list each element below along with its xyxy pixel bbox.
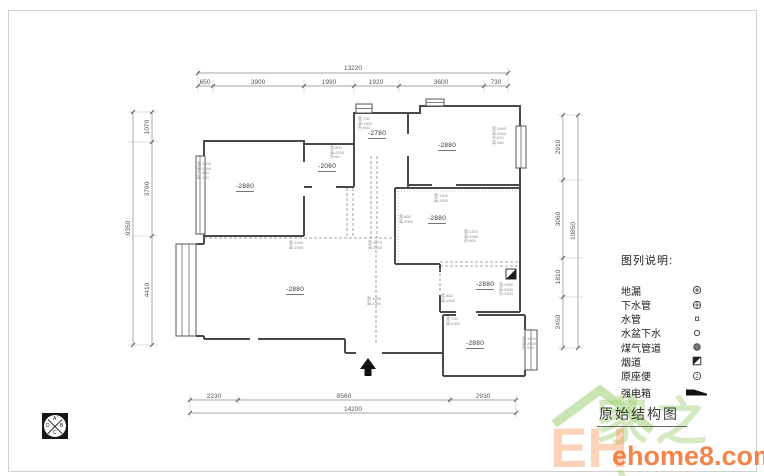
entry-arrow-icon <box>360 358 376 376</box>
room-label-bedroom-1: -2880 <box>236 183 254 192</box>
window-spec-note: 宽:800 高:2030 台:60 <box>330 146 344 160</box>
legend-item-drain-pipe: 下水管 <box>621 299 709 310</box>
svg-text:2450: 2450 <box>555 314 562 329</box>
dimension-text: 13220 650 3900 1990 1920 3600 730 2230 8… <box>125 65 577 413</box>
svg-text:2: 2 <box>695 374 698 380</box>
toilet-icon: 2 <box>685 371 709 381</box>
window-spec-note: 宽:850 高:2000 <box>399 215 413 224</box>
compass-letter-s: C <box>53 430 57 436</box>
basin-drain-icon <box>685 328 709 338</box>
legend-item-power-box: 强电箱 <box>621 387 709 398</box>
room-label-bathroom: -2880 <box>428 215 446 224</box>
power-box-icon <box>685 388 709 397</box>
floor-drain-icon <box>685 285 709 295</box>
compass-letter-e: B <box>60 423 63 429</box>
compass-letter-w: D <box>46 423 50 429</box>
dim-bottom-total: 14200 <box>344 406 362 413</box>
window-spec-note: 宽:1500 高:2000 台:440 离:100 <box>197 162 211 180</box>
svg-text:650: 650 <box>200 79 211 86</box>
svg-text:8560: 8560 <box>337 393 352 400</box>
window-spec-note: 宽:1400 高:2200 台:1100 <box>499 283 513 297</box>
room-label-bedroom-2: -2880 <box>438 142 456 151</box>
legend-item-basin-drain: 水盆下水 <box>621 328 709 339</box>
room-label-kitchen: -2880 <box>476 281 494 290</box>
legend-item-floor-drain: 地漏 <box>621 285 709 296</box>
legend-item-toilet: 原座便 2 <box>621 370 709 381</box>
window-spec-note: 宽:720 高:2000 <box>446 317 460 326</box>
room-label-living-room: -2880 <box>286 286 304 295</box>
window-spec-note: 宽:1800 高:2040 台:510 离:450 <box>492 127 506 145</box>
flue-symbol <box>506 269 516 279</box>
legend-item-water-pipe: 水管 <box>621 313 709 324</box>
room-label-hallway: -2780 <box>368 130 386 139</box>
svg-text:3060: 3060 <box>555 211 562 226</box>
svg-text:3600: 3600 <box>434 79 449 86</box>
window-symbols <box>176 99 537 370</box>
svg-text:3790: 3790 <box>144 181 151 196</box>
dim-left-total: 9350 <box>125 220 132 235</box>
window-spec-note: 宽:850 高:2000 <box>441 294 455 303</box>
legend-item-gas-pipe: 煤气管道 <box>621 342 709 353</box>
drain-pipe-icon <box>685 300 709 310</box>
svg-text:2230: 2230 <box>207 393 222 400</box>
dim-top-total: 13220 <box>344 65 362 72</box>
drawing-sheet: 13220 650 3900 1990 1920 3600 730 2230 8… <box>0 0 764 476</box>
dotted-lines <box>398 191 517 261</box>
window-spec-note: 宽:1250 高:2000 <box>367 297 381 306</box>
legend: 图列说明: 地漏 下水管 水管 水盆下水 煤气管道 <box>621 252 751 401</box>
window-spec-note: 宽:1270 高:2000 <box>368 241 382 250</box>
window-spec-note: 宽:1370 高:1980 台:900 <box>464 230 478 244</box>
sheet-title: 原始结构图 <box>597 404 687 427</box>
window-spec-note: 宽:1800 高:2040 台:510 <box>522 337 536 351</box>
water-pipe-icon <box>685 314 709 324</box>
gas-pipe-icon <box>685 342 709 352</box>
svg-text:2930: 2930 <box>476 393 491 400</box>
dim-right-total: 10850 <box>570 222 577 240</box>
svg-text:2910: 2910 <box>555 139 562 154</box>
window-spec-note: 宽:1250 高:2000 <box>289 241 303 250</box>
room-label-bedroom-3: -2880 <box>466 340 484 349</box>
svg-text:1810: 1810 <box>555 269 562 284</box>
window-spec-note: 宽:730 高:1300 台:900 <box>358 117 372 131</box>
svg-text:1920: 1920 <box>369 79 384 86</box>
svg-text:4410: 4410 <box>144 282 151 297</box>
legend-header: 图列说明: <box>621 252 751 268</box>
window-spec-note: 宽:1300 高:2000 <box>434 194 448 203</box>
svg-text:3900: 3900 <box>251 79 266 86</box>
svg-text:730: 730 <box>491 79 502 86</box>
room-label-closet: -2060 <box>318 163 336 172</box>
legend-item-flue: 烟道 <box>621 356 709 367</box>
compass-icon: A B C D <box>42 413 68 439</box>
svg-text:1070: 1070 <box>144 119 151 134</box>
svg-text:1990: 1990 <box>322 79 337 86</box>
flue-icon <box>685 356 709 366</box>
compass-letter-n: A <box>53 416 56 422</box>
